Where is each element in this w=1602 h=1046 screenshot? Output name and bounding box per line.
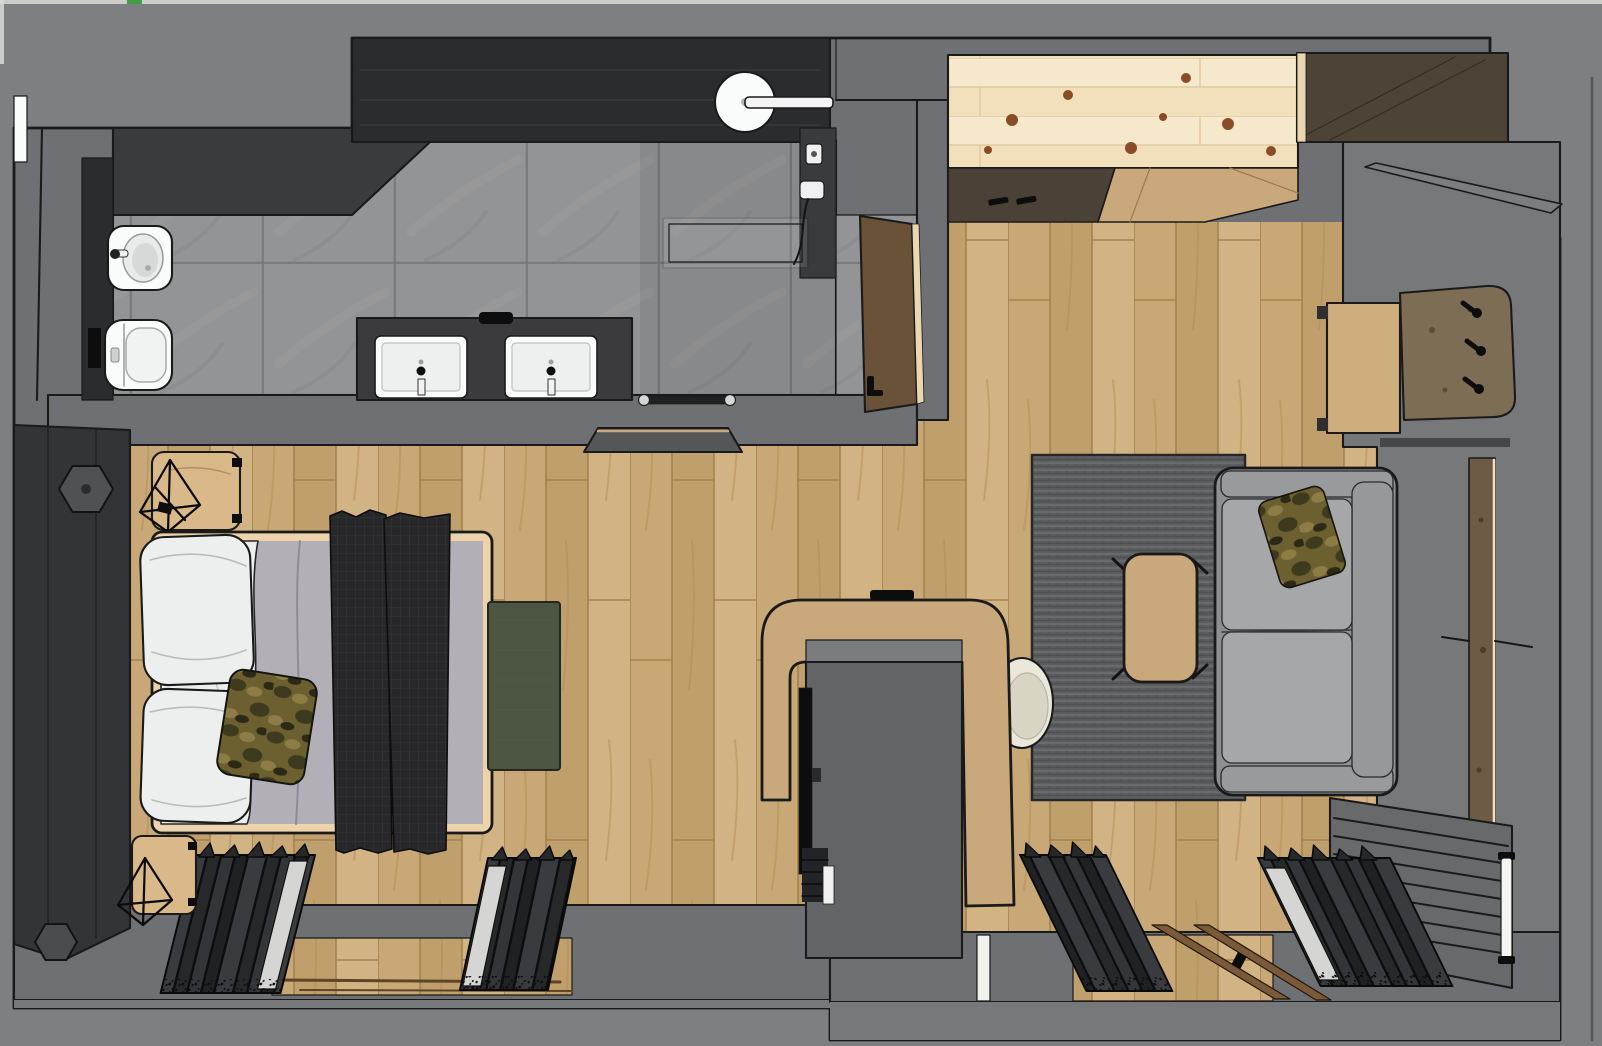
grey-sofa bbox=[1215, 468, 1397, 795]
desk-leg bbox=[1317, 418, 1328, 431]
bidet bbox=[108, 226, 172, 290]
faucet-right bbox=[548, 379, 555, 395]
faucet-left bbox=[418, 379, 425, 395]
double-bed bbox=[139, 510, 492, 854]
desk-leg bbox=[1317, 306, 1328, 319]
render-artifact-green bbox=[127, 0, 142, 4]
tv bbox=[799, 688, 812, 874]
panel-edge-sliver bbox=[823, 866, 834, 904]
camo-bed-pillow bbox=[215, 668, 318, 786]
pine-overhead-unit bbox=[948, 55, 1298, 168]
glass-partition bbox=[663, 218, 808, 268]
green-foot-mat bbox=[488, 602, 560, 770]
render-edge-artifact-left bbox=[0, 0, 4, 64]
sink-basin-left bbox=[375, 336, 467, 398]
counter-item bbox=[870, 590, 914, 600]
desk bbox=[1327, 303, 1400, 433]
tv-mount bbox=[812, 768, 821, 782]
window-sliver bbox=[14, 96, 27, 162]
sofa-backrest bbox=[1352, 482, 1393, 777]
floor-plan-svg bbox=[0, 0, 1602, 1046]
coat-peg-panel bbox=[1400, 286, 1515, 420]
hex-sconce-bottom bbox=[35, 924, 77, 960]
floor-plan-render bbox=[0, 0, 1602, 1046]
double-sink-vanity bbox=[357, 312, 632, 400]
bedroom-wall-foot bbox=[14, 1000, 830, 1008]
partition-block bbox=[806, 662, 962, 958]
render-edge-artifact-top bbox=[0, 0, 1602, 4]
partition-top-face bbox=[806, 640, 962, 662]
entrance-door bbox=[860, 216, 924, 412]
desk-corner bbox=[1317, 286, 1515, 433]
sink-basin-right bbox=[505, 336, 597, 398]
wall-shelf bbox=[584, 428, 742, 452]
soap-dispenser bbox=[479, 312, 513, 324]
dark-cabinet-fronts bbox=[948, 168, 1115, 222]
dark-throw-runner bbox=[330, 510, 392, 853]
towel-rail bbox=[639, 395, 736, 406]
pillow bbox=[139, 534, 254, 686]
threshold-sliver bbox=[977, 935, 990, 1001]
dark-throw-runner bbox=[384, 513, 450, 854]
niche-shadow-strip bbox=[1380, 438, 1510, 447]
walnut-wardrobe-top bbox=[1297, 53, 1508, 142]
living-wall-foot bbox=[830, 1002, 1560, 1040]
bidet-faucet bbox=[110, 249, 120, 259]
coffee-table bbox=[1113, 554, 1207, 682]
shower-arm bbox=[745, 97, 833, 108]
bathroom-bedroom-divider-wall bbox=[48, 395, 917, 445]
nightstand-top bbox=[152, 452, 242, 530]
sofa-seat-cushion bbox=[1222, 632, 1352, 763]
hand-shower bbox=[800, 181, 824, 199]
flush-plate bbox=[88, 328, 101, 368]
towel-post bbox=[1501, 858, 1512, 958]
